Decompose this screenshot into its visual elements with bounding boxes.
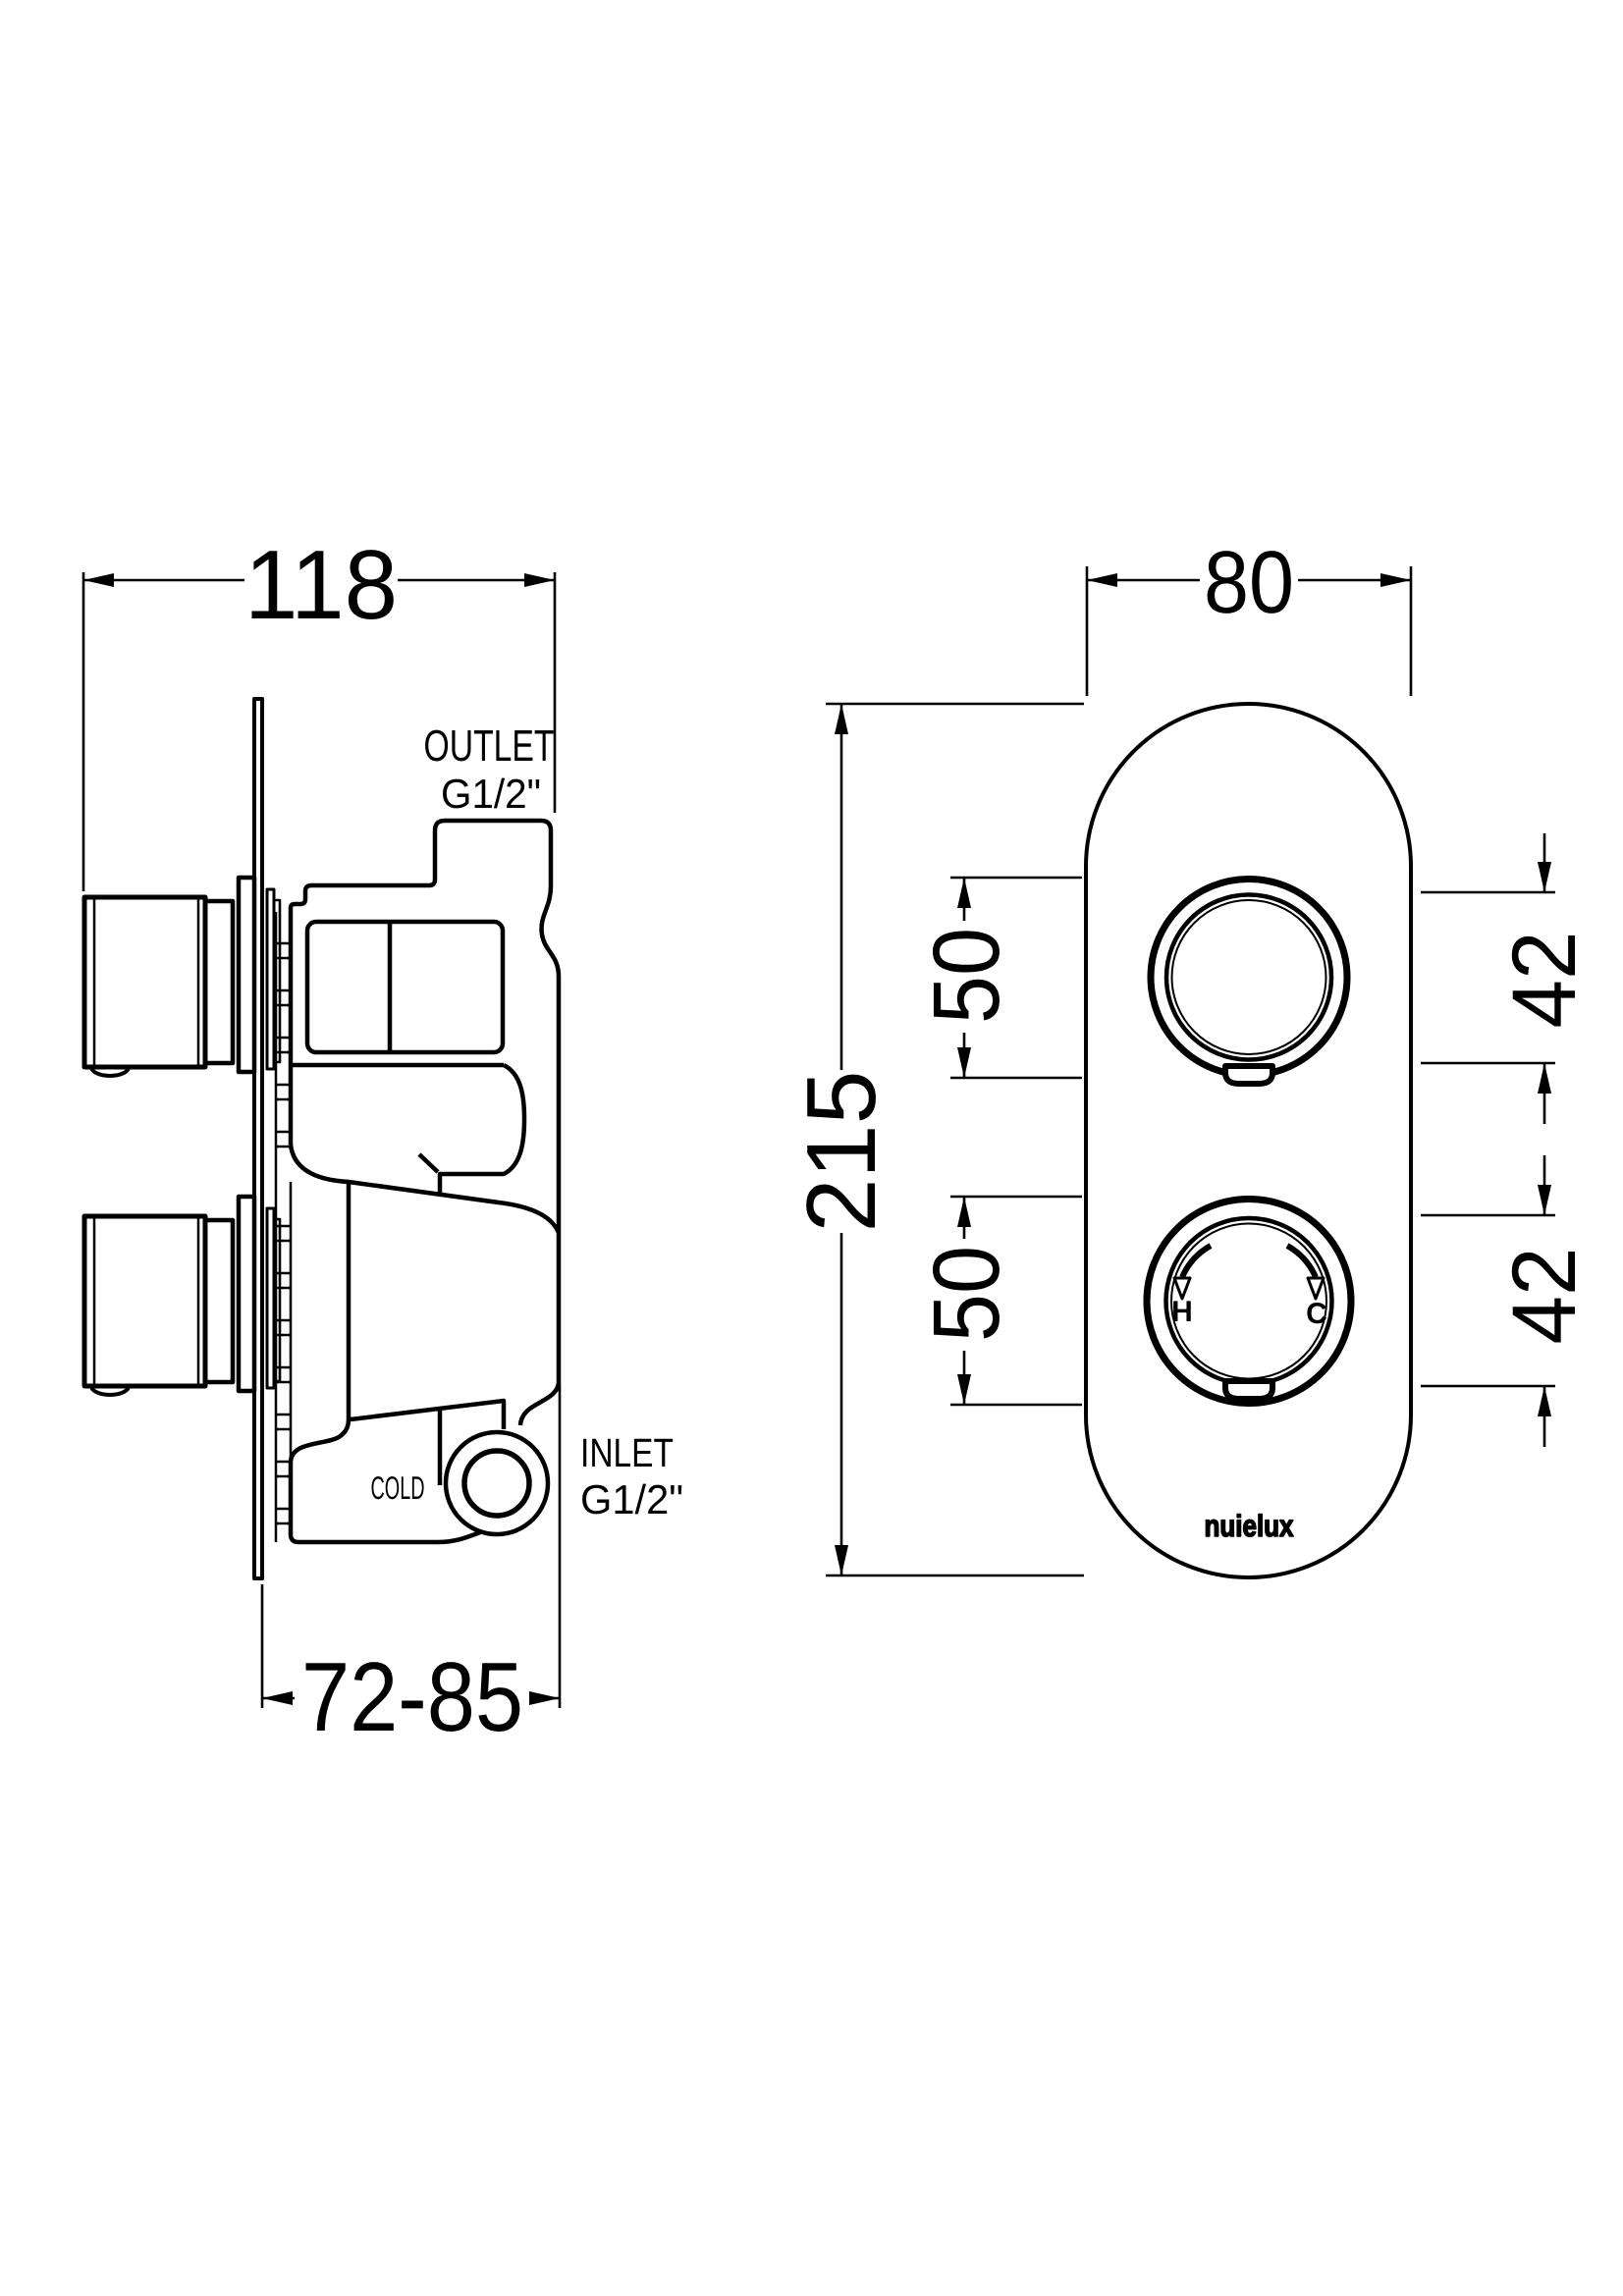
svg-text:G1/2": G1/2" xyxy=(441,771,541,817)
svg-text:C: C xyxy=(1306,1298,1327,1330)
svg-text:72-85: 72-85 xyxy=(301,1642,523,1752)
svg-text:COLD: COLD xyxy=(371,1469,425,1506)
svg-text:80: 80 xyxy=(1204,534,1294,632)
svg-text:INLET: INLET xyxy=(580,1430,674,1475)
svg-text:50: 50 xyxy=(914,928,1019,1024)
svg-text:42: 42 xyxy=(1494,932,1595,1029)
svg-text:215: 215 xyxy=(786,1071,896,1233)
svg-text:nuielux: nuielux xyxy=(1205,1509,1295,1543)
svg-text:H: H xyxy=(1171,1296,1193,1328)
svg-text:118: 118 xyxy=(244,530,398,640)
svg-text:50: 50 xyxy=(914,1246,1019,1342)
svg-text:OUTLET: OUTLET xyxy=(424,721,555,771)
svg-text:42: 42 xyxy=(1494,1248,1595,1345)
svg-text:G1/2": G1/2" xyxy=(580,1476,683,1522)
